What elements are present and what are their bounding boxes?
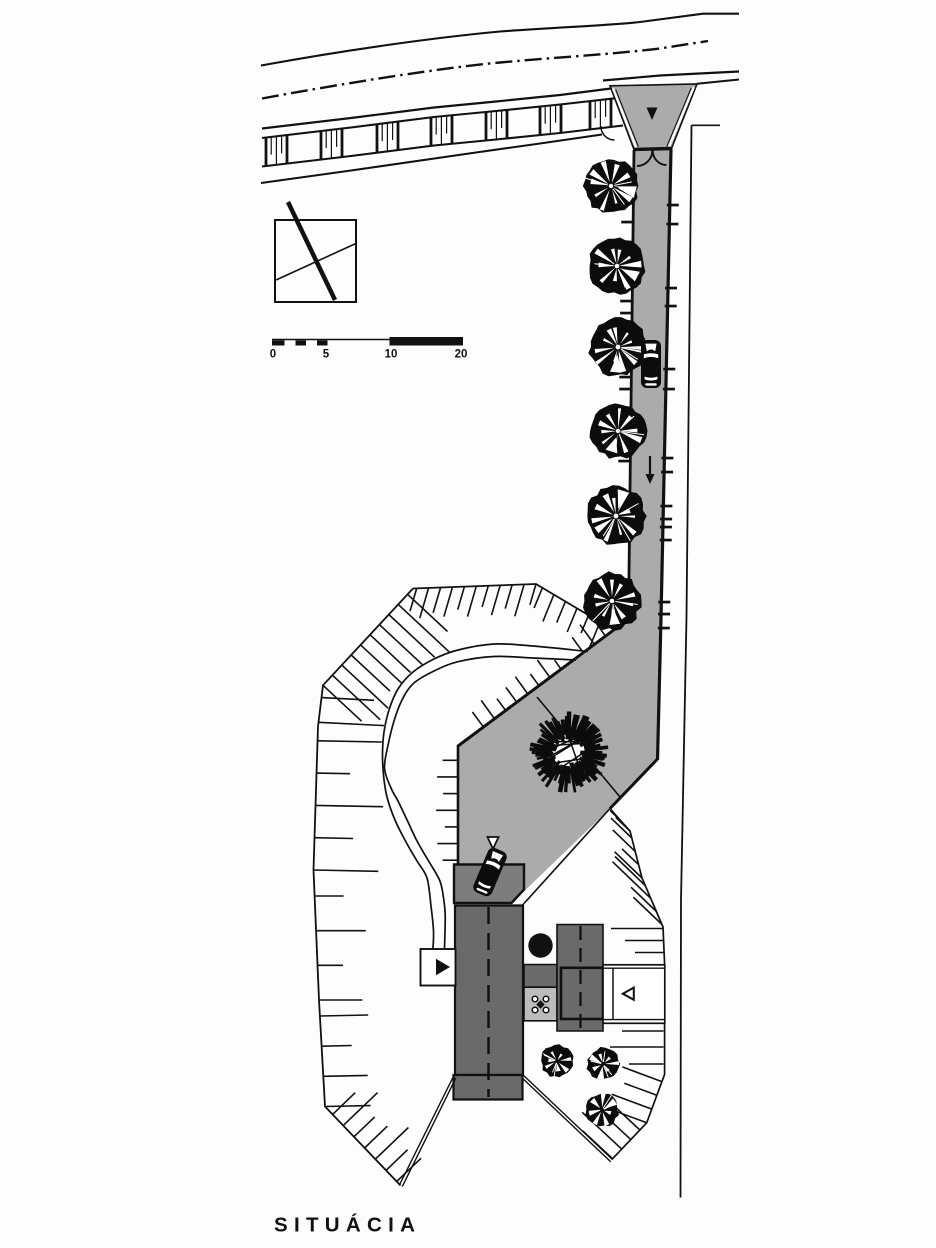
- svg-text:0: 0: [270, 349, 276, 361]
- svg-text:20: 20: [455, 349, 468, 361]
- svg-text:5: 5: [323, 349, 330, 361]
- svg-text:SITUÁCIA: SITUÁCIA: [274, 1214, 421, 1237]
- svg-text:10: 10: [385, 349, 398, 361]
